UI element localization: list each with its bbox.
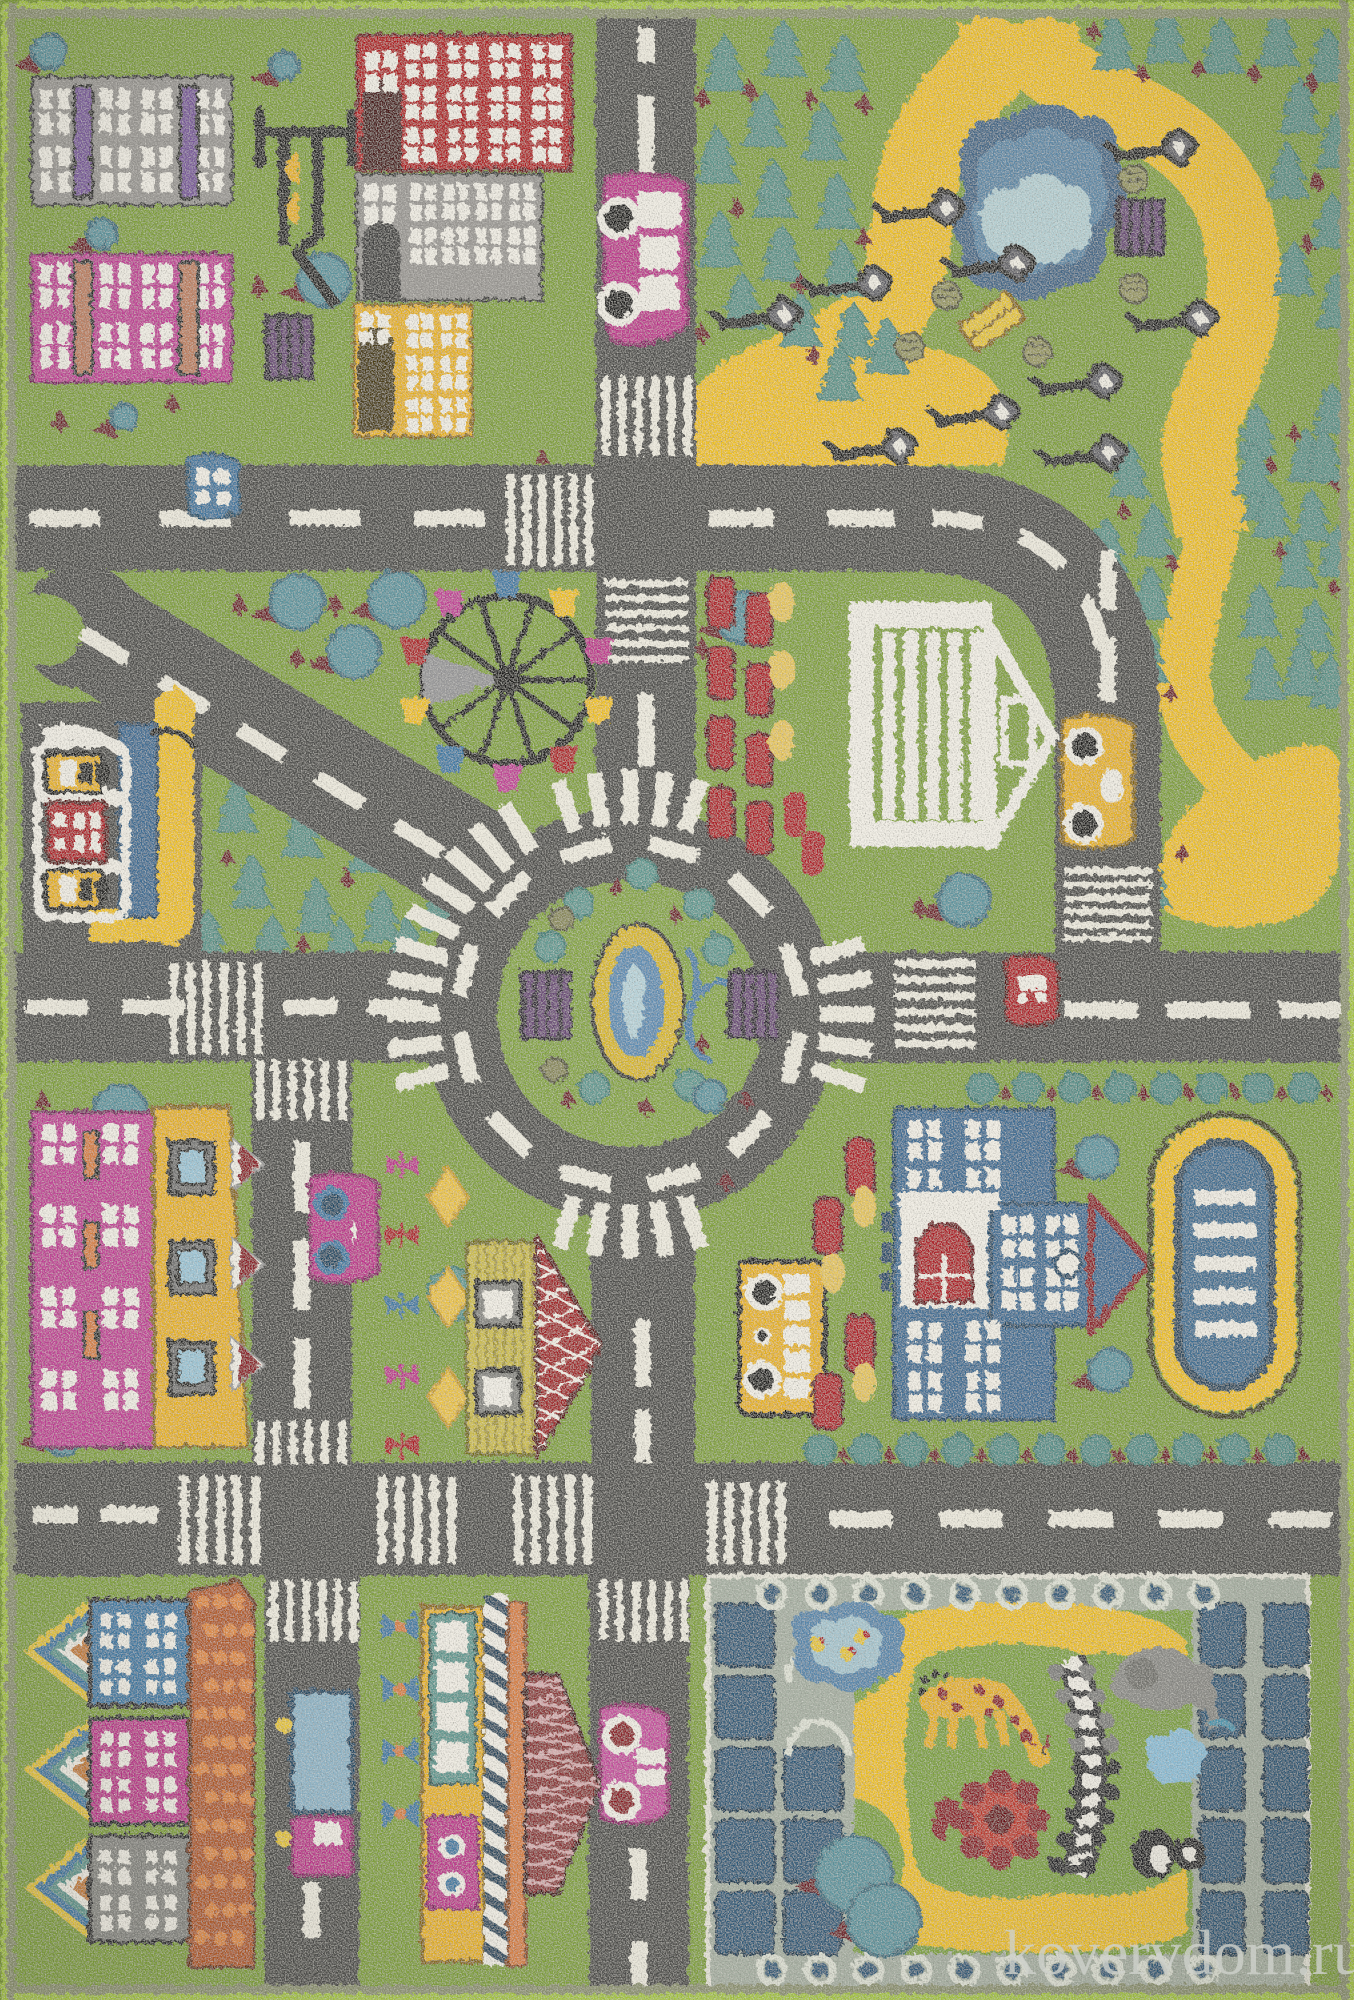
svg-text:kovervdom.ru: kovervdom.ru <box>1004 1917 1354 1988</box>
